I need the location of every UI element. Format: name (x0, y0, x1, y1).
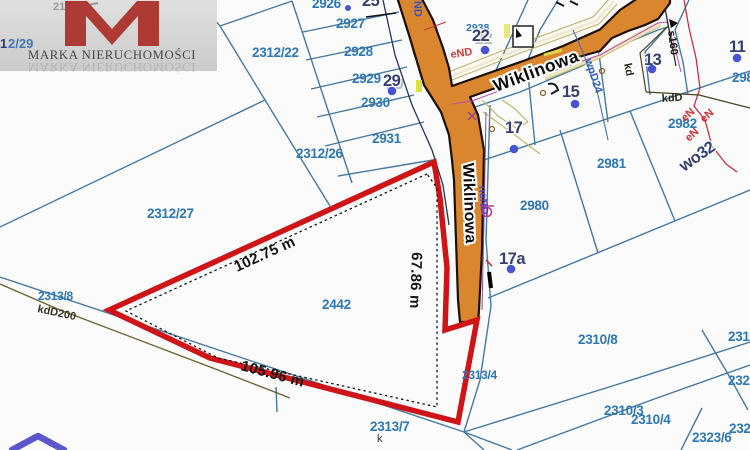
svg-text:17: 17 (505, 119, 523, 137)
svg-text:ND: ND (411, 1, 424, 17)
svg-text:2981: 2981 (597, 156, 627, 171)
svg-text:k: k (377, 433, 383, 445)
svg-text:2982: 2982 (732, 70, 750, 85)
svg-text:2312/26: 2312/26 (296, 146, 343, 161)
svg-text:2926: 2926 (312, 0, 342, 11)
svg-text:25: 25 (362, 0, 380, 10)
svg-text:67.86 m: 67.86 m (406, 252, 425, 309)
svg-text:2310/4: 2310/4 (631, 412, 671, 427)
svg-text:11: 11 (729, 38, 746, 56)
svg-text:2313/8: 2313/8 (38, 289, 74, 303)
svg-text:MARKA NIERUCHOMOŚCI: MARKA NIERUCHOMOŚCI (28, 60, 196, 74)
svg-text:2931: 2931 (372, 131, 402, 146)
svg-text:2980: 2980 (520, 198, 549, 213)
svg-text:22: 22 (472, 27, 490, 45)
svg-text:2323: 2323 (728, 373, 750, 388)
svg-text:2312/27: 2312/27 (147, 206, 194, 221)
svg-text:2313/7: 2313/7 (370, 419, 410, 434)
svg-text:2323/6: 2323/6 (692, 430, 732, 445)
svg-text:neND: neND (476, 185, 490, 215)
svg-text:Wiklinowa: Wiklinowa (459, 163, 479, 244)
svg-text:2928: 2928 (344, 44, 374, 59)
svg-text:2929: 2929 (352, 71, 381, 86)
svg-text:2310/8: 2310/8 (578, 332, 618, 347)
svg-text:2313/4: 2313/4 (462, 368, 498, 382)
svg-text:21: 21 (53, 1, 65, 13)
svg-text:1: 1 (0, 36, 7, 51)
svg-text:MARKA NIERUCHOMOŚCI: MARKA NIERUCHOMOŚCI (28, 48, 196, 62)
svg-text:kdD: kdD (661, 92, 683, 105)
svg-text:2930: 2930 (361, 95, 390, 110)
svg-text:2310/: 2310/ (728, 329, 750, 344)
svg-text:2323: 2323 (729, 421, 750, 436)
svg-text:2442: 2442 (322, 297, 351, 312)
svg-text:15: 15 (562, 83, 580, 101)
svg-text:2927: 2927 (336, 16, 365, 31)
svg-text:2312/22: 2312/22 (252, 45, 299, 60)
svg-text:2/29: 2/29 (8, 36, 33, 51)
